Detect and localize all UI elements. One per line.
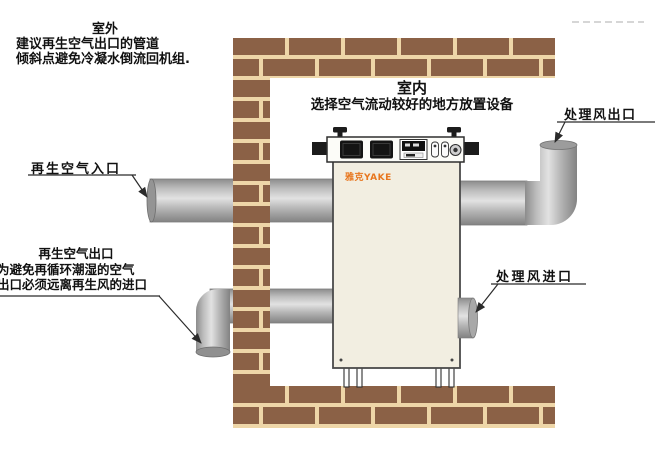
indoor-title: 室内 (298, 80, 526, 97)
process-air-inlet-label: 处理风进口 (496, 266, 574, 285)
pipe-open-end (196, 347, 230, 357)
outdoor-note-line3: 倾斜点避免冷凝水倒流回机组. (16, 52, 194, 67)
brick-floor (233, 386, 555, 428)
leader-arrow-process-inlet (476, 284, 498, 312)
display-module (400, 140, 427, 160)
regen-outlet-line2: 为避免再循环潮湿的空气 (0, 262, 155, 278)
machine-leg (436, 367, 441, 387)
brand-logo: 雅克YAKE (345, 170, 392, 183)
pipe-open-end (540, 141, 577, 150)
diagram-canvas (0, 0, 655, 457)
machine-leg (344, 367, 349, 387)
outdoor-note-line2: 建议再生空气出口的管道 (16, 37, 194, 52)
process-air-inlet-stub (458, 298, 478, 338)
pipe-open-end (147, 179, 156, 222)
leader-arrow-regen-outlet (159, 296, 201, 343)
leader-arrow-process-outlet (555, 122, 565, 142)
machine-leg (449, 367, 454, 387)
machine-body (333, 160, 460, 368)
machine-leg (357, 367, 362, 387)
process-air-outlet-label: 处理风出口 (564, 104, 637, 123)
pipe-open-end (469, 298, 478, 338)
screw (340, 359, 343, 362)
installation-diagram: 室外 建议再生空气出口的管道 倾斜点避免冷凝水倒流回机组. 室内 选择空气流动较… (0, 0, 655, 457)
leader-arrow-regen-inlet (132, 175, 147, 197)
regen-air-inlet-label: 再生空气入口 (31, 158, 121, 177)
regen-air-outlet-note: 再生空气出口 为避免再循环潮湿的空气 出口必须远离再生风的进口 (0, 246, 155, 293)
panel-side-stub (463, 142, 479, 155)
screw (451, 359, 454, 362)
indoor-note: 室内 选择空气流动较好的地方放置设备 (298, 80, 526, 113)
panel-side-stub (312, 142, 328, 155)
pipe-elbow (525, 145, 577, 225)
outdoor-note: 室外 建议再生空气出口的管道 倾斜点避免冷凝水倒流回机组. (16, 22, 194, 67)
regen-outlet-line1: 再生空气出口 (0, 246, 155, 262)
pressure-gauge (450, 145, 461, 156)
indoor-note-line2: 选择空气流动较好的地方放置设备 (298, 97, 526, 113)
regen-outlet-line3: 出口必须远离再生风的进口 (0, 277, 155, 293)
dehumidifier-unit (312, 127, 479, 387)
outdoor-title: 室外 (16, 22, 194, 37)
